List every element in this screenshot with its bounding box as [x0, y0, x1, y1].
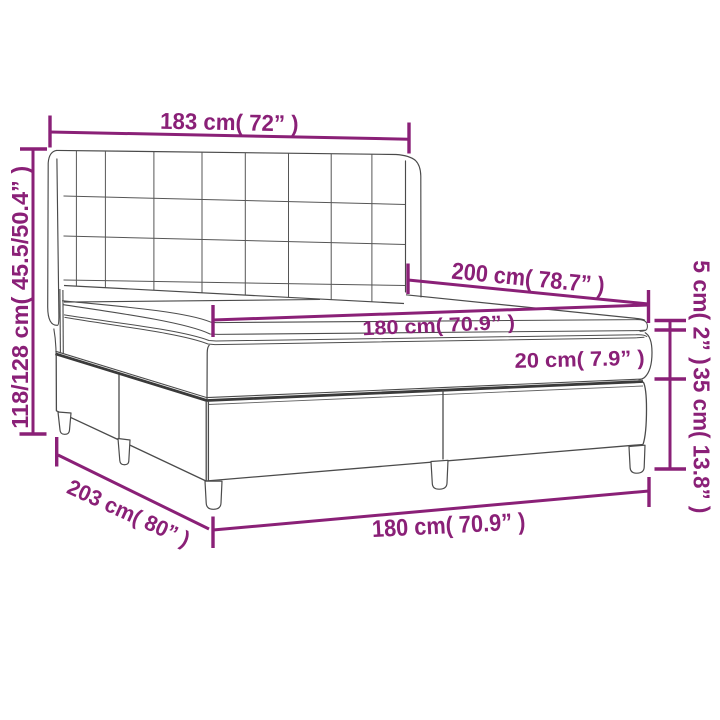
svg-text:5 cm( 2” ): 5 cm( 2” ) — [689, 260, 715, 365]
svg-text:35 cm( 13.8” ): 35 cm( 13.8” ) — [689, 367, 715, 513]
svg-text:20 cm( 7.9” ): 20 cm( 7.9” ) — [514, 347, 645, 373]
svg-text:183 cm( 72” ): 183 cm( 72” ) — [160, 108, 299, 137]
svg-text:118/128 cm( 45.5/50.4” ): 118/128 cm( 45.5/50.4” ) — [7, 166, 33, 429]
